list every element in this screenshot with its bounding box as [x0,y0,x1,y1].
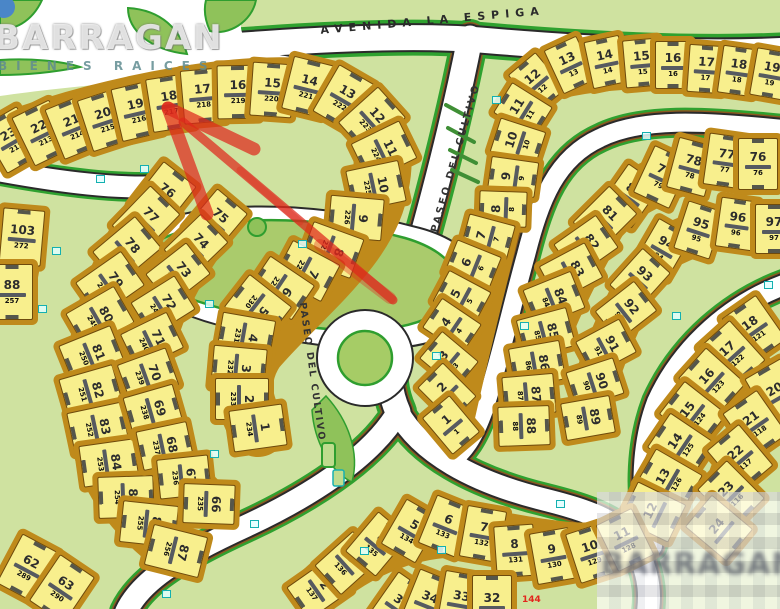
lot-id: 132 [474,539,490,548]
watermark-top-left: BARRAGAN BIENES RAICES [0,18,262,73]
lot-number: 16 [665,52,682,64]
lot-id: 1 [453,428,461,436]
lot-id: 87 [516,391,524,401]
lot-id: 78 [684,172,695,181]
lot-id: 16 [668,71,678,78]
utility-marker-icon [672,312,681,320]
utility-marker-icon [205,300,214,308]
lot-number: 18 [730,57,748,71]
lot-id: 76 [753,170,763,177]
lot-number: 17 [194,82,212,95]
lot-number: 18 [160,89,178,103]
lot-id: 3 [452,362,460,370]
lot-number: 5 [449,287,464,300]
lot-area-text [694,69,717,75]
lot-number: 6 [442,512,454,526]
lot-number: 33 [452,588,471,603]
lot-id: 96 [730,229,741,237]
red-lot-reference: 144 [522,595,541,605]
lot-id: 217 [164,108,180,117]
lot-right-middle-inner-arc-96: 9696 [715,197,760,252]
lot-number: 69 [152,398,168,417]
lot-number: 14 [300,72,319,88]
lot-area-text [504,197,509,220]
lot-id: 257 [5,298,20,305]
utility-marker-icon [642,132,651,140]
lot-id: 226 [342,210,350,225]
lot-number: 5 [256,304,271,318]
lot-number: 19 [126,96,145,111]
lot-right-avenue-block-16: 1616 [655,41,691,89]
lot-left-outer-arc-103: 103272 [0,207,45,266]
lot-id: 233 [229,392,236,407]
lot-number: 97 [766,216,780,228]
utility-marker-icon [764,281,773,289]
lot-number: 83 [97,417,112,436]
utility-marker-icon [52,247,61,255]
utility-marker-icon [96,175,105,183]
lot-number: 87 [175,543,191,562]
lot-area-text [258,90,285,96]
lot-number: 3 [240,364,253,373]
lot-area-text [745,165,771,169]
lot-number: 88 [4,279,21,291]
lot-area-text [0,293,26,297]
lot-number: 76 [750,151,767,163]
lot-id: 131 [508,556,523,564]
lot-id: 254 [113,490,121,505]
utility-marker-icon [360,547,369,555]
lot-number: 4 [246,333,259,343]
lot-number: 96 [729,210,747,224]
utility-marker-icon [556,500,565,508]
lot-number: 77 [718,147,736,161]
lot-id: 5 [466,298,474,306]
lot-number: 1 [258,422,271,432]
lot-id: 272 [14,242,29,250]
lot-number: 7 [479,520,489,533]
lot-number: 103 [10,223,36,237]
lot-number: 89 [588,408,603,427]
utility-marker-icon [162,590,171,598]
watermark-brand: BARRAGAN [0,18,262,58]
lot-number: 7 [474,230,488,241]
lot-number: 84 [109,453,123,471]
lot-number: 8 [332,246,346,258]
subdivision-map: 2321222213212142021519216182171721816219… [0,0,780,609]
watermark-bottom-right-pixelated: BARRAGAN [597,492,780,609]
lot-number: 7 [306,268,321,281]
lot-number: 15 [633,49,651,62]
lot-number: 88 [525,417,538,434]
utility-marker-icon [298,240,307,248]
watermark-tagline: BIENES RAICES [0,59,262,73]
lot-id: 218 [196,101,211,109]
lot-id: 97 [769,235,779,242]
utility-marker-icon [250,520,259,528]
lot-left-inner-arc-66: 66235 [182,483,235,525]
lot-number: 32 [484,592,501,604]
lot-number: 9 [357,214,370,223]
lot-left-outer-arc-87: 87256 [144,524,208,578]
lot-right-middle-inner-arc-89: 8989 [560,395,616,441]
lot-id: 7 [493,236,501,243]
lot-left-outer-arc-88: 88257 [0,264,33,320]
lot-id: 18 [731,76,742,84]
lot-id: 219 [231,98,246,105]
lot-number: 66 [210,496,223,513]
lot-number: 2 [243,395,255,403]
lot-number: 14 [595,48,614,63]
lot-number: 87 [529,386,542,404]
utility-marker-icon [140,165,149,173]
lot-number: 86 [537,354,552,373]
lot-number: 16 [229,79,246,91]
lot-id: 235 [196,496,204,511]
lot-area-text [661,66,684,70]
lot-number: 17 [698,55,715,68]
lot-number: 6 [279,285,294,299]
utility-marker-icon [437,546,446,554]
lot-id: 15 [638,69,648,77]
lot-number: 15 [264,76,281,89]
utility-marker-icon [38,305,47,313]
lot-top-left-arc-1: 1234 [228,403,287,452]
lot-number: 19 [763,60,780,75]
lot-right-avenue-block-1: 11 [422,395,480,455]
lot-id: 6 [478,265,486,272]
lot-id: 130 [547,561,563,570]
lot-right-middle-outer-arc-88: 8888 [497,405,550,447]
lot-id: 14 [602,67,613,76]
utility-marker-icon [210,450,219,458]
lot-bottom-middle-fan-8: 8131 [493,524,537,579]
lot-area-text [762,230,780,234]
lot-number: 68 [164,435,179,454]
lot-right-middle-inner-arc-97: 9797 [755,204,780,254]
lot-number: 82 [90,380,106,399]
lot-number: 5 [408,518,421,533]
lot-area-text [224,93,251,97]
utility-marker-icon [520,322,529,330]
lot-id: 8 [509,207,516,212]
lot-id: 77 [719,166,730,174]
lot-number: 9 [547,542,557,555]
lot-id: 220 [264,95,279,103]
watermark-pixelated-text: BARRAGAN [601,547,780,582]
lot-number: 85 [545,322,561,341]
lot-id: 10 [522,139,532,150]
lot-number: 8 [510,538,519,551]
lot-number: 9 [500,171,513,181]
utility-marker-icon [432,352,441,360]
lot-number: 90 [593,371,610,391]
lot-number: 10 [375,175,390,194]
lot-right-middle-outer-arc-76: 7676 [738,138,778,190]
lot-area-text [479,606,505,609]
lot-id: 4 [456,327,465,335]
lot-bottom-middle-fan-32: 32 [472,575,512,609]
lot-id: 9 [519,175,527,181]
lot-area-text [519,413,524,439]
lot-number: 6 [459,256,473,268]
lot-area-text [204,491,209,517]
lot-id: 17 [700,75,710,83]
lot-number: 8 [490,204,502,213]
lot-id: 88 [511,421,518,431]
lot-id: 19 [764,79,775,88]
utility-marker-icon [492,96,501,104]
lot-id: 232 [225,360,233,375]
